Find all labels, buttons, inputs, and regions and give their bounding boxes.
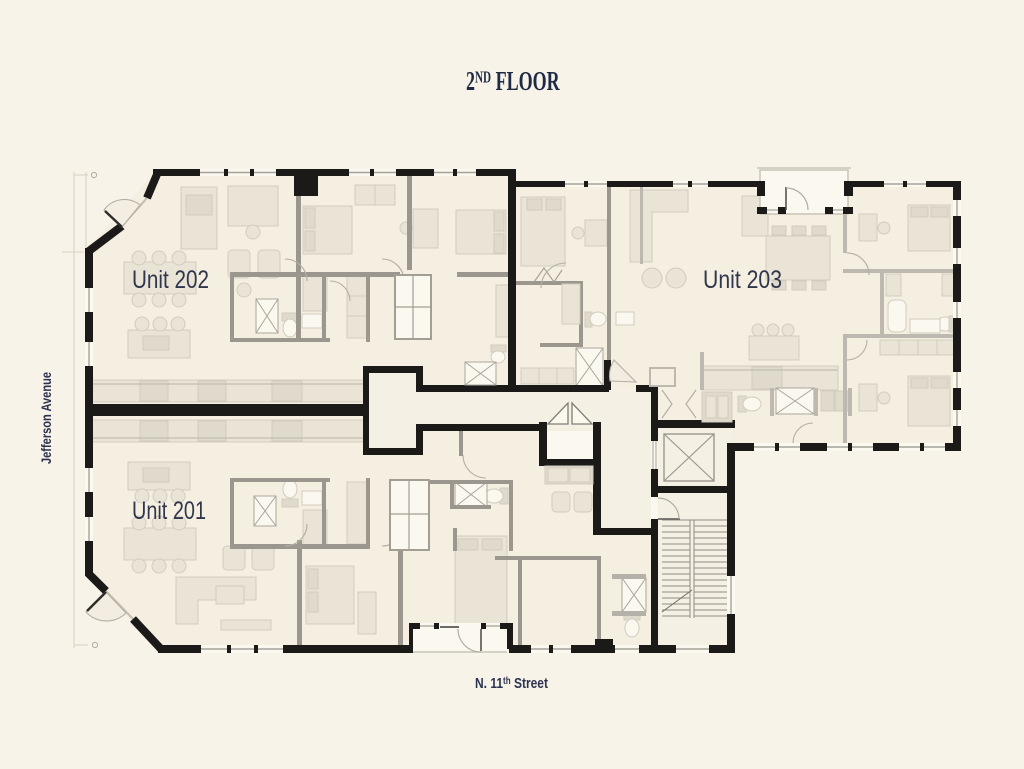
svg-text:Unit 202: Unit 202	[132, 266, 209, 294]
svg-text:Jefferson Avenue: Jefferson Avenue	[38, 372, 54, 464]
svg-text:Unit 203: Unit 203	[703, 266, 782, 294]
svg-text:N. 11th Street: N. 11th Street	[475, 675, 548, 692]
svg-text:Unit 201: Unit 201	[132, 497, 206, 525]
